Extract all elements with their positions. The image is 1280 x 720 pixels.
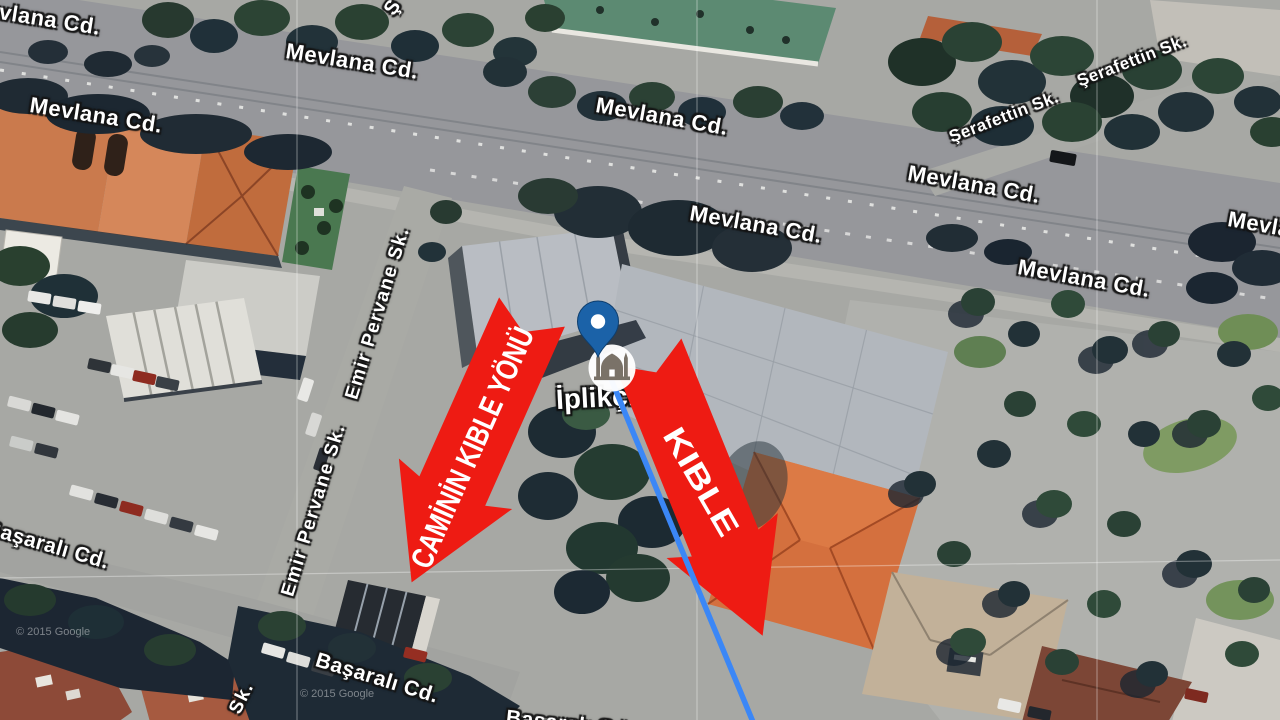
pin-center-dot bbox=[591, 314, 605, 328]
annotation-layer: CAMİNİN KIBLE YÖNÜ KIBLE bbox=[0, 0, 1280, 720]
qibla-direction-arrow-left: CAMİNİN KIBLE YÖNÜ bbox=[355, 287, 589, 608]
satellite-map-screenshot: İplikçi Mevlana Cd.Mevlana Cd.Mevlana Cd… bbox=[0, 0, 1280, 720]
